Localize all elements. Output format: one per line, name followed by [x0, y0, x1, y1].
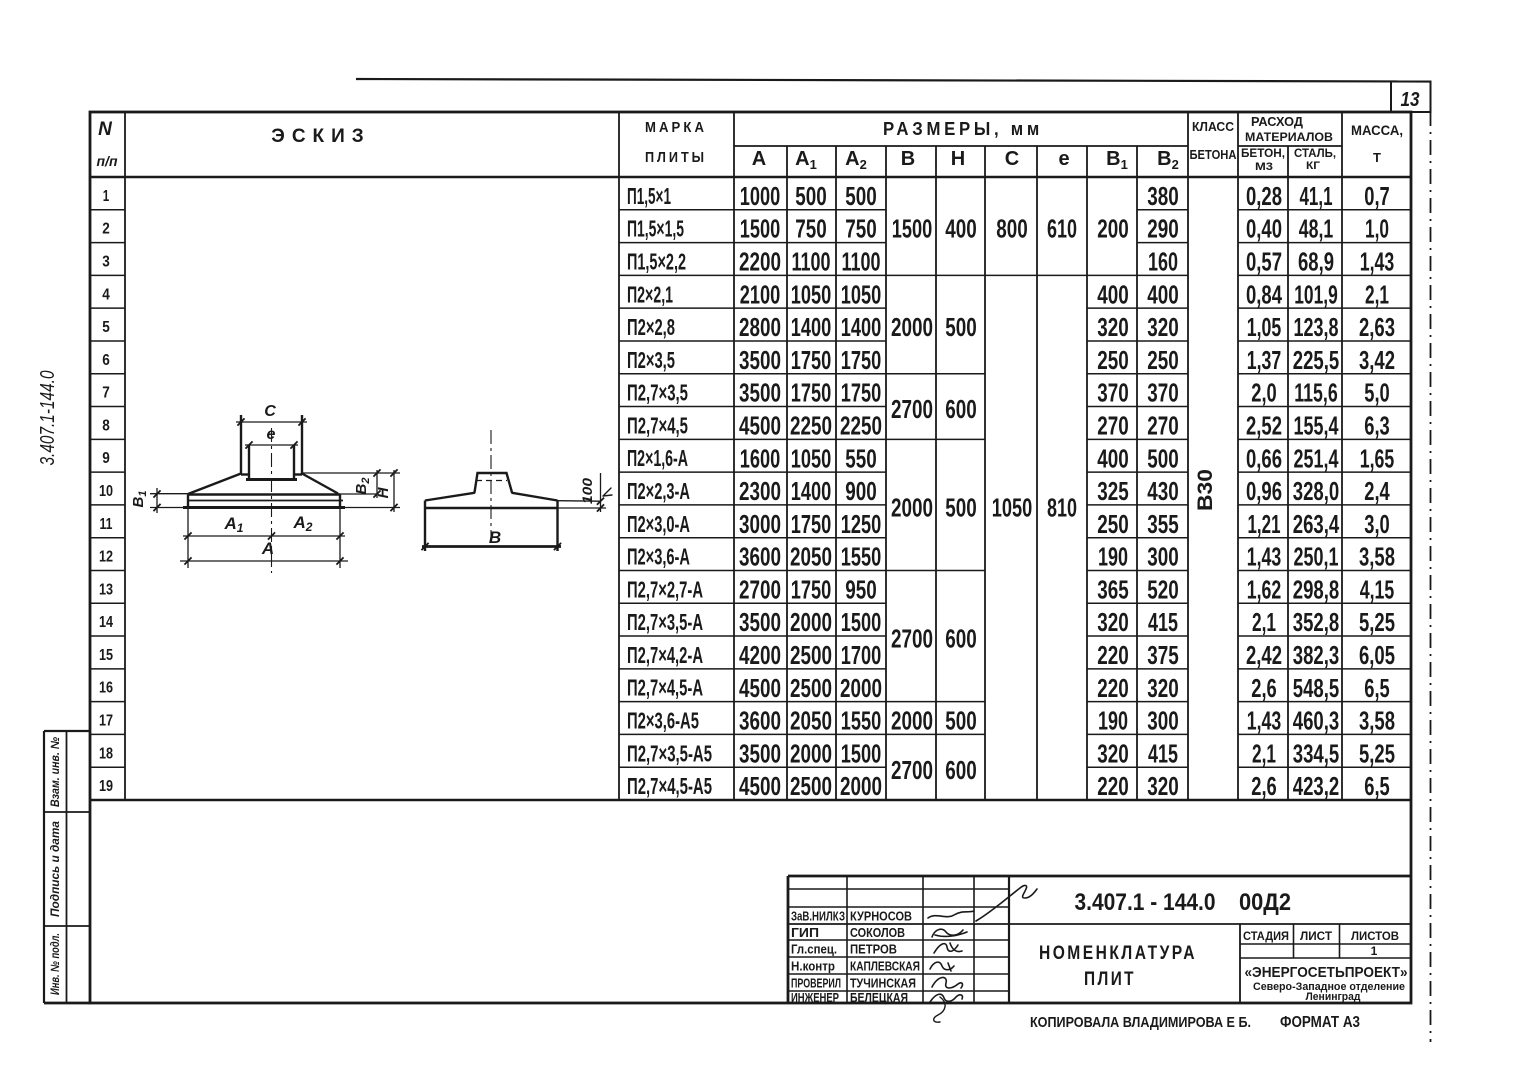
svg-text:334,5: 334,5	[1293, 738, 1340, 768]
svg-text:2800: 2800	[739, 312, 781, 342]
svg-text:750: 750	[795, 214, 827, 244]
svg-text:Взам. инв. №: Взам. инв. №	[48, 737, 62, 807]
svg-text:Ленинград: Ленинград	[1306, 991, 1361, 1003]
svg-text:500: 500	[795, 181, 827, 211]
svg-text:А1: А1	[224, 514, 244, 535]
svg-text:1400: 1400	[791, 312, 832, 342]
svg-text:1,43: 1,43	[1247, 542, 1282, 572]
svg-text:1750: 1750	[791, 509, 832, 539]
svg-text:1750: 1750	[841, 345, 882, 375]
svg-text:П2,7×3,5-А: П2,7×3,5-А	[627, 609, 703, 635]
svg-text:В: В	[901, 148, 915, 170]
svg-text:750: 750	[845, 214, 877, 244]
svg-text:РАСХОД: РАСХОД	[1251, 114, 1304, 129]
svg-text:2250: 2250	[840, 410, 882, 440]
svg-text:В1: В1	[1106, 148, 1128, 172]
svg-text:3,58: 3,58	[1359, 706, 1395, 736]
svg-text:2000: 2000	[790, 738, 832, 768]
svg-text:500: 500	[845, 181, 877, 211]
svg-text:2,0: 2,0	[1251, 378, 1277, 408]
svg-text:298,8: 298,8	[1293, 574, 1340, 604]
svg-text:13: 13	[99, 581, 113, 598]
svg-text:12: 12	[99, 549, 113, 566]
svg-text:3000: 3000	[739, 509, 781, 539]
svg-text:В2: В2	[1157, 148, 1179, 172]
svg-text:2050: 2050	[790, 706, 832, 736]
svg-text:600: 600	[945, 624, 977, 654]
svg-text:263,4: 263,4	[1293, 509, 1340, 539]
svg-text:68,9: 68,9	[1298, 247, 1334, 277]
svg-text:С: С	[1005, 148, 1019, 170]
svg-text:550: 550	[845, 443, 877, 473]
svg-text:0,40: 0,40	[1246, 214, 1282, 244]
svg-text:100: 100	[579, 478, 595, 504]
svg-text:ПЕТРОВ: ПЕТРОВ	[850, 942, 897, 957]
svg-text:3500: 3500	[739, 378, 781, 408]
svg-text:400: 400	[945, 214, 977, 244]
svg-text:6: 6	[102, 352, 110, 369]
svg-text:155,4: 155,4	[1294, 410, 1339, 440]
svg-text:2700: 2700	[891, 394, 933, 424]
svg-text:6,3: 6,3	[1364, 410, 1390, 440]
svg-text:3,58: 3,58	[1359, 542, 1395, 572]
svg-text:160: 160	[1148, 247, 1178, 277]
svg-text:БЕТОН,: БЕТОН,	[1241, 146, 1285, 160]
svg-text:2000: 2000	[891, 492, 933, 522]
svg-text:1100: 1100	[842, 247, 881, 277]
svg-text:41,1: 41,1	[1300, 181, 1333, 211]
svg-text:900: 900	[845, 476, 877, 506]
svg-text:382,3: 382,3	[1293, 640, 1340, 670]
svg-text:ЗаВ.НИЛКЗ: ЗаВ.НИЛКЗ	[791, 909, 845, 924]
svg-text:14: 14	[99, 614, 113, 631]
svg-text:320: 320	[1147, 673, 1179, 703]
svg-text:13: 13	[1401, 89, 1420, 111]
svg-text:«ЭНЕРГОСЕТЬПРОЕКТ»: «ЭНЕРГОСЕТЬПРОЕКТ»	[1245, 964, 1408, 981]
svg-text:М3: М3	[1255, 161, 1273, 173]
svg-text:БЕТОНА: БЕТОНА	[1190, 147, 1238, 162]
svg-text:1: 1	[1371, 944, 1378, 958]
svg-text:П2×3,6-А5: П2×3,6-А5	[627, 708, 699, 734]
svg-text:1750: 1750	[791, 574, 832, 604]
svg-text:115,6: 115,6	[1294, 378, 1338, 408]
svg-text:КУРНОСОВ: КУРНОСОВ	[850, 909, 912, 924]
svg-text:2700: 2700	[891, 755, 933, 785]
svg-text:320: 320	[1147, 771, 1179, 801]
svg-text:270: 270	[1097, 410, 1129, 440]
svg-text:1050: 1050	[841, 279, 882, 309]
svg-text:ЭСКИЗ: ЭСКИЗ	[271, 126, 370, 147]
svg-text:Т: Т	[1373, 150, 1381, 165]
svg-text:190: 190	[1098, 542, 1128, 572]
svg-text:10: 10	[99, 483, 113, 500]
svg-text:В30: В30	[1194, 469, 1217, 511]
svg-text:8: 8	[102, 417, 110, 434]
svg-text:5: 5	[102, 319, 110, 336]
svg-text:СТАЛЬ,: СТАЛЬ,	[1294, 146, 1336, 160]
svg-text:П2×3,0-А: П2×3,0-А	[627, 511, 690, 537]
svg-text:1,65: 1,65	[1360, 443, 1395, 473]
svg-text:3600: 3600	[739, 706, 781, 736]
svg-text:ПРОВЕРИЛ: ПРОВЕРИЛ	[791, 976, 841, 991]
svg-text:2000: 2000	[840, 673, 882, 703]
svg-text:500: 500	[1147, 443, 1179, 473]
svg-text:225,5: 225,5	[1293, 345, 1340, 375]
svg-text:11: 11	[100, 516, 113, 533]
svg-text:КОПИРОВАЛА ВЛАДИМИРОВА Е Б.: КОПИРОВАЛА ВЛАДИМИРОВА Е Б.	[1030, 1014, 1251, 1031]
svg-text:375: 375	[1147, 640, 1179, 670]
svg-text:400: 400	[1097, 279, 1129, 309]
svg-text:А2: А2	[845, 148, 867, 172]
svg-text:3500: 3500	[739, 607, 781, 637]
svg-text:1: 1	[103, 188, 110, 205]
svg-text:7: 7	[102, 385, 110, 402]
svg-text:П2,7×3,5-А5: П2,7×3,5-А5	[627, 740, 712, 766]
svg-text:П1,5×1: П1,5×1	[627, 183, 671, 209]
svg-text:1,0: 1,0	[1365, 214, 1389, 244]
svg-text:1550: 1550	[841, 706, 882, 736]
svg-text:КГ: КГ	[1306, 160, 1321, 172]
svg-text:123,8: 123,8	[1294, 312, 1339, 342]
svg-text:1100: 1100	[792, 247, 831, 277]
svg-text:500: 500	[945, 706, 977, 736]
svg-text:N: N	[98, 119, 113, 140]
svg-text:355: 355	[1147, 509, 1179, 539]
svg-text:2050: 2050	[790, 542, 832, 572]
svg-text:300: 300	[1147, 542, 1179, 572]
svg-text:0,57: 0,57	[1246, 247, 1282, 277]
svg-text:2200: 2200	[739, 247, 781, 277]
svg-text:2000: 2000	[891, 706, 933, 736]
svg-text:0,96: 0,96	[1246, 476, 1282, 506]
svg-text:Гл.спец.: Гл.спец.	[791, 942, 837, 957]
svg-text:1500: 1500	[841, 607, 882, 637]
svg-text:П2×2,1: П2×2,1	[627, 281, 673, 307]
svg-text:800: 800	[996, 214, 1028, 244]
svg-text:ПЛИТЫ: ПЛИТЫ	[645, 149, 707, 166]
svg-text:2500: 2500	[790, 673, 832, 703]
svg-text:1,62: 1,62	[1247, 574, 1282, 604]
svg-text:4: 4	[102, 286, 110, 303]
svg-text:2,1: 2,1	[1252, 607, 1276, 637]
svg-text:2000: 2000	[790, 607, 832, 637]
svg-text:1600: 1600	[740, 443, 781, 473]
svg-text:1,05: 1,05	[1247, 312, 1282, 342]
svg-text:3600: 3600	[739, 542, 781, 572]
svg-text:251,4: 251,4	[1294, 443, 1339, 473]
svg-text:430: 430	[1147, 476, 1179, 506]
svg-text:П2×3,6-А: П2×3,6-А	[627, 544, 690, 570]
svg-text:А: А	[261, 539, 274, 558]
svg-text:2500: 2500	[790, 771, 832, 801]
svg-text:МАРКА: МАРКА	[645, 119, 707, 136]
svg-text:2100: 2100	[740, 279, 781, 309]
svg-text:РАЗМЕРЫ, мм: РАЗМЕРЫ, мм	[883, 119, 1043, 139]
svg-text:КАПЛЕВСКАЯ: КАПЛЕВСКАЯ	[850, 959, 920, 974]
svg-text:3: 3	[102, 253, 110, 270]
svg-text:290: 290	[1147, 214, 1179, 244]
svg-text:1050: 1050	[791, 279, 832, 309]
svg-text:500: 500	[945, 492, 977, 522]
svg-text:18: 18	[99, 745, 113, 762]
svg-text:0,84: 0,84	[1246, 279, 1282, 309]
svg-text:4,15: 4,15	[1360, 574, 1395, 604]
svg-text:П2,7×4,2-А: П2,7×4,2-А	[627, 642, 703, 668]
svg-text:5,0: 5,0	[1364, 378, 1390, 408]
svg-text:5,25: 5,25	[1359, 607, 1395, 637]
svg-text:220: 220	[1097, 771, 1129, 801]
svg-text:1550: 1550	[841, 542, 882, 572]
svg-text:2,1: 2,1	[1252, 738, 1276, 768]
svg-text:101,9: 101,9	[1294, 279, 1338, 309]
svg-text:5,25: 5,25	[1359, 738, 1395, 768]
svg-text:1750: 1750	[841, 378, 882, 408]
svg-text:1,43: 1,43	[1247, 706, 1282, 736]
svg-text:2700: 2700	[891, 624, 933, 654]
svg-text:250,1: 250,1	[1294, 542, 1339, 572]
svg-text:320: 320	[1097, 312, 1129, 342]
svg-text:500: 500	[945, 312, 977, 342]
svg-text:ПЛИТ: ПЛИТ	[1084, 969, 1136, 990]
svg-text:П1,5×2,2: П1,5×2,2	[627, 248, 686, 274]
svg-text:0,7: 0,7	[1364, 181, 1390, 211]
svg-text:2,42: 2,42	[1246, 640, 1282, 670]
svg-text:4500: 4500	[739, 771, 781, 801]
svg-text:6,5: 6,5	[1364, 771, 1390, 801]
svg-text:В2: В2	[353, 478, 372, 495]
svg-text:1050: 1050	[791, 443, 832, 473]
svg-text:423,2: 423,2	[1293, 771, 1340, 801]
svg-text:3,42: 3,42	[1359, 345, 1395, 375]
svg-text:370: 370	[1097, 378, 1129, 408]
svg-text:190: 190	[1098, 706, 1128, 736]
svg-text:17: 17	[99, 713, 113, 730]
svg-text:00Д2: 00Д2	[1239, 889, 1291, 916]
svg-text:2,4: 2,4	[1364, 476, 1390, 506]
svg-text:СОКОЛОВ: СОКОЛОВ	[850, 925, 905, 940]
svg-text:352,8: 352,8	[1293, 607, 1340, 637]
svg-text:П2,7×4,5-А: П2,7×4,5-А	[627, 675, 703, 701]
svg-text:250: 250	[1147, 345, 1179, 375]
svg-text:2700: 2700	[739, 574, 781, 604]
svg-text:328,0: 328,0	[1293, 476, 1340, 506]
svg-text:МАССА,: МАССА,	[1351, 122, 1403, 138]
svg-text:ТУЧИНСКАЯ: ТУЧИНСКАЯ	[850, 976, 916, 991]
svg-text:2500: 2500	[790, 640, 832, 670]
svg-text:е: е	[1058, 148, 1069, 170]
svg-text:810: 810	[1047, 493, 1077, 523]
svg-text:2000: 2000	[891, 312, 933, 342]
svg-text:1750: 1750	[791, 378, 832, 408]
svg-text:А: А	[752, 148, 766, 170]
svg-text:3500: 3500	[739, 738, 781, 768]
svg-text:ЛИСТОВ: ЛИСТОВ	[1351, 929, 1399, 943]
svg-text:250: 250	[1097, 345, 1129, 375]
svg-text:П2×2,8: П2×2,8	[627, 314, 675, 340]
svg-text:П1,5×1,5: П1,5×1,5	[627, 216, 684, 242]
svg-text:П2,7×3,5: П2,7×3,5	[627, 380, 688, 406]
svg-text:2,1: 2,1	[1365, 279, 1389, 309]
svg-text:3.407.1 - 144.0: 3.407.1 - 144.0	[1075, 889, 1216, 916]
svg-text:ГИП: ГИП	[791, 925, 819, 940]
svg-text:П2×2,3-А: П2×2,3-А	[627, 478, 690, 504]
svg-text:48,1: 48,1	[1299, 214, 1334, 244]
svg-text:6,5: 6,5	[1364, 673, 1390, 703]
svg-text:1500: 1500	[740, 214, 781, 244]
svg-text:220: 220	[1097, 673, 1129, 703]
svg-text:ИНЖЕНЕР: ИНЖЕНЕР	[791, 990, 839, 1005]
svg-text:9: 9	[102, 450, 110, 467]
svg-text:А1: А1	[795, 148, 817, 172]
svg-text:МАТЕРИАЛОВ: МАТЕРИАЛОВ	[1245, 130, 1333, 144]
svg-text:16: 16	[99, 680, 113, 697]
svg-text:2000: 2000	[840, 771, 882, 801]
svg-text:С: С	[264, 403, 276, 420]
svg-text:2300: 2300	[739, 476, 781, 506]
svg-text:300: 300	[1147, 706, 1179, 736]
svg-text:3.407.1-144.0: 3.407.1-144.0	[37, 371, 59, 466]
svg-text:250: 250	[1097, 509, 1129, 539]
svg-text:Н.контр: Н.контр	[791, 959, 835, 974]
svg-text:6,05: 6,05	[1359, 640, 1395, 670]
svg-text:1050: 1050	[992, 493, 1033, 523]
svg-text:3500: 3500	[739, 345, 781, 375]
svg-text:0,66: 0,66	[1246, 443, 1282, 473]
svg-text:400: 400	[1097, 443, 1129, 473]
svg-text:1750: 1750	[791, 345, 832, 375]
svg-text:320: 320	[1097, 738, 1129, 768]
svg-text:1000: 1000	[740, 181, 781, 211]
svg-text:270: 270	[1147, 410, 1179, 440]
svg-text:П2×3,5: П2×3,5	[627, 347, 675, 373]
svg-text:2250: 2250	[790, 410, 832, 440]
svg-text:4500: 4500	[739, 673, 781, 703]
svg-text:2,6: 2,6	[1251, 673, 1277, 703]
svg-text:1250: 1250	[841, 509, 882, 539]
svg-text:2,63: 2,63	[1359, 312, 1395, 342]
svg-text:600: 600	[945, 755, 977, 785]
svg-text:1500: 1500	[892, 214, 933, 244]
svg-text:460,3: 460,3	[1293, 706, 1340, 736]
svg-text:1,21: 1,21	[1248, 509, 1281, 539]
svg-text:Н: Н	[375, 486, 392, 498]
svg-text:1400: 1400	[841, 312, 882, 342]
svg-text:950: 950	[845, 574, 877, 604]
svg-text:380: 380	[1147, 181, 1179, 211]
svg-text:365: 365	[1097, 574, 1129, 604]
svg-text:п/п: п/п	[97, 153, 118, 169]
svg-text:КЛАСС: КЛАСС	[1192, 119, 1235, 134]
svg-text:220: 220	[1097, 640, 1129, 670]
svg-text:600: 600	[945, 394, 977, 424]
svg-text:415: 415	[1148, 607, 1178, 637]
svg-text:4200: 4200	[739, 640, 781, 670]
svg-text:320: 320	[1097, 607, 1129, 637]
svg-text:НОМЕНКЛАТУРА: НОМЕНКЛАТУРА	[1039, 943, 1197, 964]
svg-text:400: 400	[1147, 279, 1179, 309]
svg-text:370: 370	[1147, 378, 1179, 408]
svg-text:Инв. № подл.: Инв. № подл.	[48, 933, 62, 995]
svg-text:2,52: 2,52	[1246, 410, 1282, 440]
svg-text:415: 415	[1148, 738, 1178, 768]
svg-text:2,6: 2,6	[1251, 771, 1277, 801]
svg-text:1,37: 1,37	[1247, 345, 1282, 375]
svg-text:0,28: 0,28	[1246, 181, 1282, 211]
svg-text:1700: 1700	[841, 640, 882, 670]
svg-text:3,0: 3,0	[1364, 509, 1390, 539]
svg-text:БЕЛЕЦКАЯ: БЕЛЕЦКАЯ	[850, 990, 908, 1005]
svg-text:325: 325	[1097, 476, 1129, 506]
svg-text:19: 19	[99, 778, 113, 795]
svg-text:Н: Н	[951, 148, 965, 170]
svg-text:320: 320	[1147, 312, 1179, 342]
svg-text:П2,7×2,7-А: П2,7×2,7-А	[627, 576, 703, 602]
svg-text:548,5: 548,5	[1293, 673, 1340, 703]
svg-text:610: 610	[1047, 214, 1077, 244]
svg-text:А2: А2	[293, 513, 313, 534]
svg-text:Подпись и дата: Подпись и дата	[48, 821, 62, 917]
svg-text:2: 2	[102, 221, 110, 238]
svg-text:15: 15	[99, 647, 113, 664]
svg-text:520: 520	[1147, 574, 1179, 604]
svg-text:П2,7×4,5-А5: П2,7×4,5-А5	[627, 773, 712, 799]
svg-text:ЛИСТ: ЛИСТ	[1300, 929, 1333, 943]
svg-text:П2×1,6-А: П2×1,6-А	[627, 445, 688, 471]
svg-text:200: 200	[1097, 214, 1129, 244]
svg-text:1,43: 1,43	[1360, 247, 1395, 277]
svg-text:СТАДИЯ: СТАДИЯ	[1243, 929, 1289, 943]
svg-text:В1: В1	[130, 491, 149, 508]
svg-text:П2,7×4,5: П2,7×4,5	[627, 412, 688, 438]
svg-text:4500: 4500	[739, 410, 781, 440]
svg-text:1400: 1400	[791, 476, 832, 506]
svg-text:ФОРМАТ А3: ФОРМАТ А3	[1280, 1014, 1360, 1031]
svg-text:1500: 1500	[841, 738, 882, 768]
